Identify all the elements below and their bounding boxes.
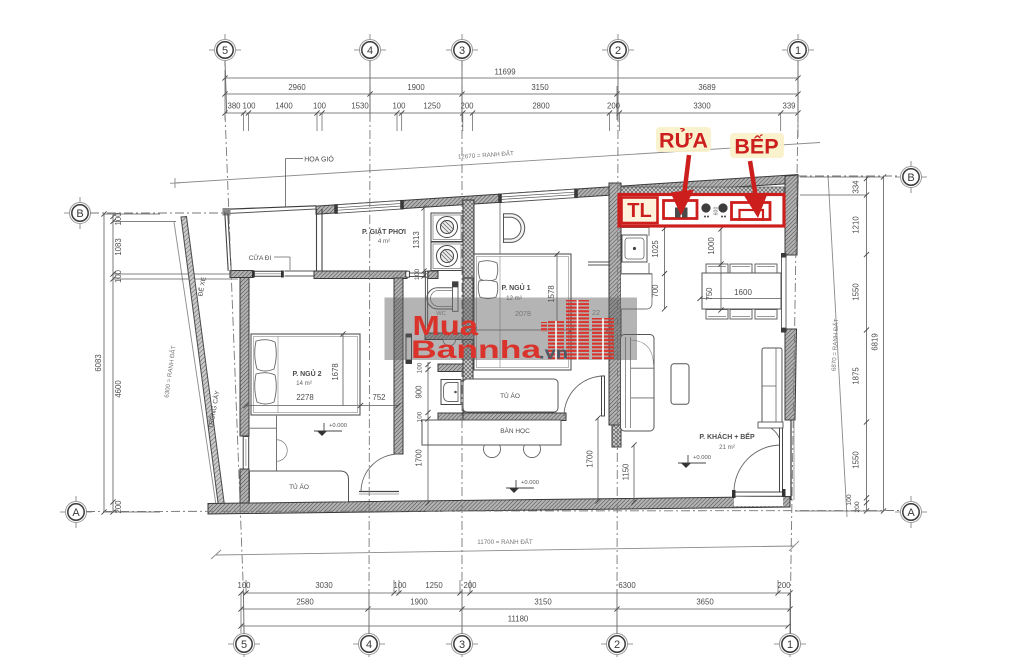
svg-text:TỦ ÁO: TỦ ÁO	[500, 391, 520, 400]
svg-text:1600: 1600	[734, 288, 752, 297]
svg-text:BÀN HỌC: BÀN HỌC	[500, 426, 530, 435]
svg-text:100: 100	[846, 494, 853, 506]
svg-text:1250: 1250	[425, 581, 443, 590]
svg-text:750: 750	[705, 287, 714, 301]
svg-text:1700: 1700	[586, 450, 595, 468]
svg-text:3689: 3689	[698, 83, 715, 92]
svg-text:1550: 1550	[852, 451, 861, 469]
svg-text:100: 100	[114, 269, 123, 283]
svg-text:600: 600	[714, 207, 720, 216]
svg-text:900: 900	[415, 385, 424, 399]
svg-text:CỬA ĐI: CỬA ĐI	[249, 253, 272, 262]
svg-text:5: 5	[222, 45, 228, 57]
svg-text:Bannha: Bannha	[411, 335, 542, 363]
svg-text:P. NGỦ 1: P. NGỦ 1	[501, 283, 530, 292]
svg-text:11700 = RANH ĐẤT: 11700 = RANH ĐẤT	[477, 539, 533, 546]
svg-text:700: 700	[651, 284, 660, 298]
svg-text:21 m²: 21 m²	[719, 444, 735, 451]
svg-text:380: 380	[227, 102, 241, 111]
svg-text:A: A	[72, 507, 80, 519]
svg-text:B: B	[76, 208, 83, 220]
svg-text:1250: 1250	[423, 102, 441, 111]
svg-text:+0.000: +0.000	[329, 423, 347, 429]
svg-text:2: 2	[614, 639, 620, 651]
svg-text:100: 100	[313, 102, 327, 111]
svg-text:1: 1	[787, 639, 793, 651]
svg-text:2800: 2800	[532, 102, 550, 111]
svg-text:B: B	[907, 172, 914, 184]
svg-text:3: 3	[459, 45, 465, 57]
svg-text:100: 100	[414, 269, 421, 281]
svg-text:339: 339	[782, 102, 795, 111]
svg-text:1083: 1083	[114, 238, 123, 255]
svg-text:2960: 2960	[288, 83, 306, 92]
svg-text:P. NGỦ 2: P. NGỦ 2	[292, 369, 321, 378]
svg-text:4 m²: 4 m²	[378, 238, 390, 245]
svg-text:RỬA: RỬA	[659, 128, 708, 153]
svg-text:TL: TL	[627, 200, 651, 222]
svg-text:200: 200	[607, 102, 621, 111]
svg-text:1678: 1678	[331, 363, 340, 380]
svg-text:TỦ ÁO: TỦ ÁO	[289, 482, 309, 491]
svg-text:+0.000: +0.000	[521, 480, 539, 486]
svg-text:3150: 3150	[534, 598, 552, 607]
svg-text:100: 100	[417, 411, 424, 422]
svg-text:3030: 3030	[315, 581, 333, 590]
svg-text:2: 2	[615, 45, 621, 57]
svg-text:100: 100	[392, 102, 406, 111]
svg-text:1900: 1900	[407, 83, 425, 92]
svg-text:4600: 4600	[114, 380, 123, 398]
svg-text:1550: 1550	[852, 283, 861, 301]
svg-text:752: 752	[372, 393, 385, 402]
svg-text:1150: 1150	[622, 463, 631, 480]
svg-text:14 m²: 14 m²	[296, 380, 312, 387]
svg-text:100: 100	[393, 581, 407, 590]
svg-text:1700: 1700	[415, 449, 424, 467]
svg-text:.vn: .vn	[539, 343, 568, 362]
svg-text:3300: 3300	[693, 102, 711, 111]
svg-text:1400: 1400	[275, 102, 293, 111]
svg-text:200: 200	[460, 102, 474, 111]
svg-text:BẾP: BẾP	[734, 134, 778, 159]
svg-text:100: 100	[242, 102, 256, 111]
svg-text:A: A	[907, 507, 915, 519]
svg-text:1313: 1313	[412, 231, 421, 248]
svg-text:+0.000: +0.000	[693, 455, 711, 461]
svg-text:6083: 6083	[94, 354, 103, 371]
svg-text:1210: 1210	[852, 216, 861, 234]
svg-text:5: 5	[241, 639, 247, 651]
svg-text:4: 4	[367, 45, 373, 57]
svg-text:3150: 3150	[531, 83, 549, 92]
svg-text:1530: 1530	[351, 102, 369, 111]
svg-text:2278: 2278	[296, 393, 313, 402]
svg-text:2580: 2580	[296, 598, 314, 607]
svg-text:11180: 11180	[508, 615, 529, 624]
svg-text:334: 334	[852, 180, 861, 194]
svg-text:P. GIẶT PHƠI: P. GIẶT PHƠI	[362, 227, 406, 236]
svg-text:1900: 1900	[410, 598, 428, 607]
svg-text:4: 4	[366, 639, 372, 651]
svg-text:6819: 6819	[871, 333, 880, 350]
svg-text:HOA GIÓ: HOA GIÓ	[304, 155, 334, 164]
svg-text:1025: 1025	[651, 240, 660, 258]
svg-text:1: 1	[795, 45, 801, 57]
svg-text:200: 200	[777, 581, 791, 590]
svg-text:1000: 1000	[707, 237, 716, 255]
svg-text:100: 100	[237, 581, 251, 590]
svg-text:6300: 6300	[618, 581, 636, 590]
svg-text:3650: 3650	[696, 598, 714, 607]
svg-text:11699: 11699	[494, 68, 515, 77]
svg-text:1875: 1875	[852, 367, 861, 385]
svg-text:3: 3	[459, 639, 465, 651]
svg-text:100: 100	[417, 362, 424, 373]
